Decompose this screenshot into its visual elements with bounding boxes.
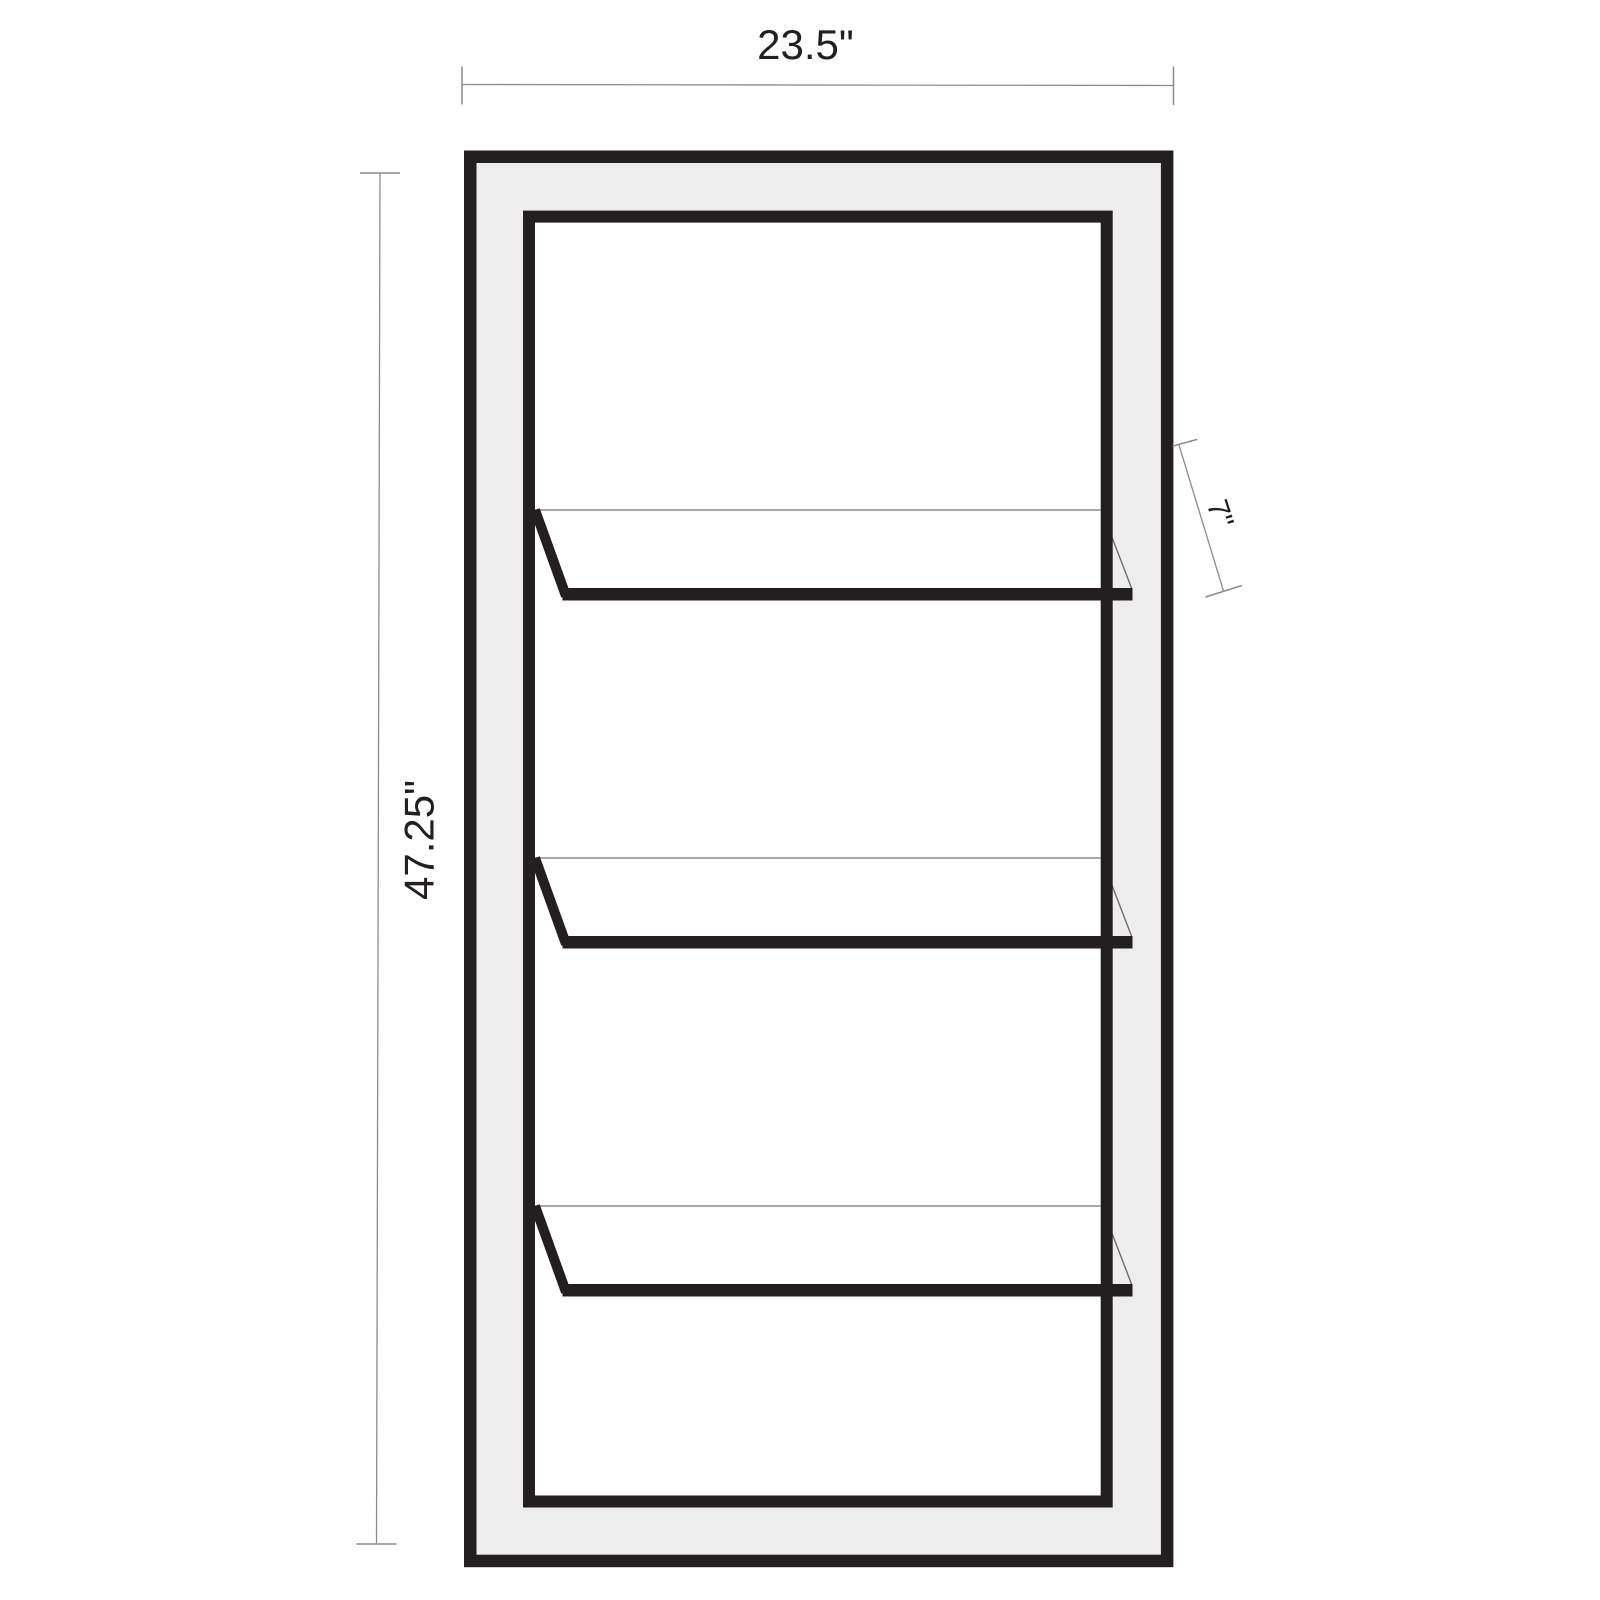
svg-text:7": 7" xyxy=(1200,496,1240,532)
svg-text:23.5": 23.5" xyxy=(757,21,854,68)
svg-text:47.25": 47.25" xyxy=(396,780,443,900)
